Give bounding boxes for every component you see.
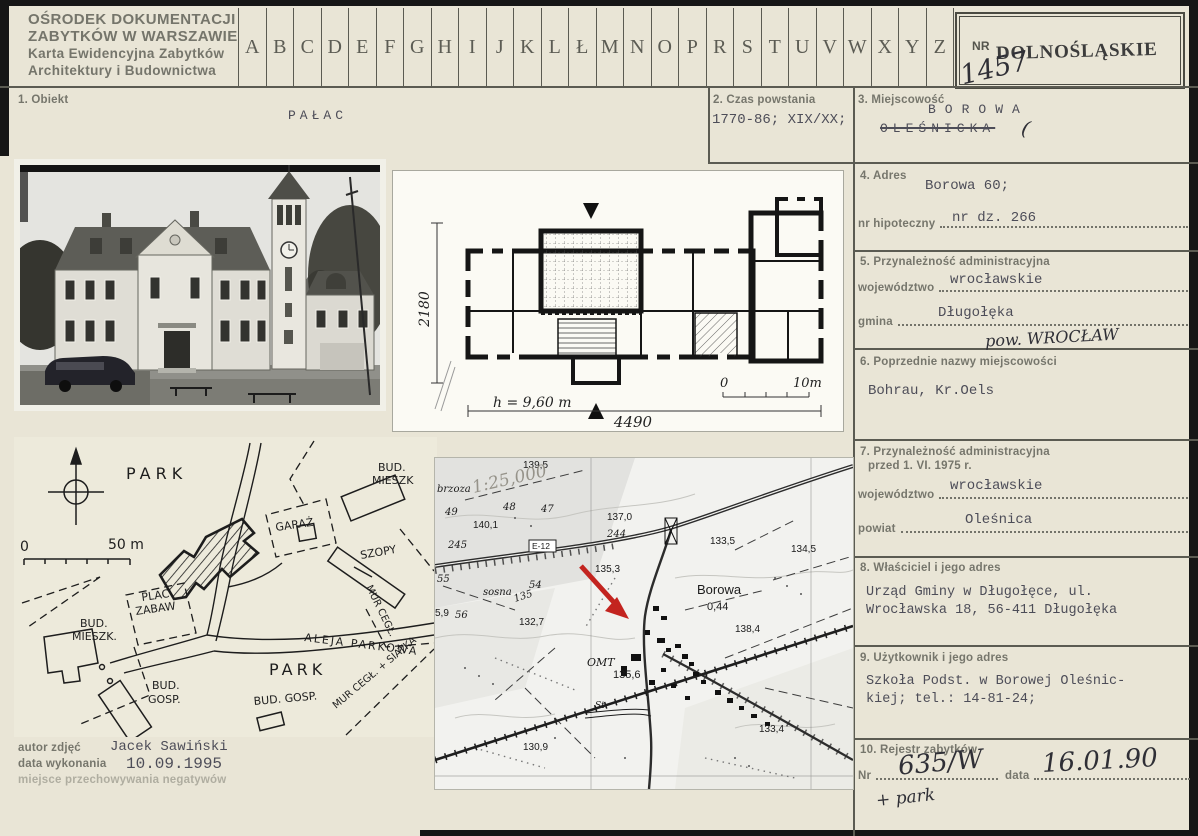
uzytkownik-line1: Szkoła Podst. w Borowej Oleśnic-	[866, 674, 1125, 689]
org-header: OŚRODEK DOKUMENTACJI ZABYTKÓW W WARSZAWI…	[28, 11, 238, 79]
alpha-letter: Y	[898, 8, 926, 86]
nr-hipoteczny-row: nr hipoteczny	[858, 216, 1188, 230]
map-label: 49	[444, 507, 458, 518]
rule	[853, 250, 1198, 252]
site-label: 0	[20, 539, 29, 555]
map-label: 138,4	[735, 624, 760, 635]
map-label: 137,0	[607, 512, 632, 523]
negatywy-label: miejsce przechowywania negatywów	[18, 774, 226, 786]
field-czas-label: 2. Czas powstania	[713, 94, 815, 106]
compass	[48, 449, 104, 525]
site-label: PARK	[269, 660, 326, 679]
rejestr-data-label: data	[1005, 770, 1029, 782]
siteplan-scale	[24, 559, 130, 565]
field-obiekt-value: PAŁAC	[288, 108, 347, 123]
org-line: Architektury i Budownictwa	[28, 62, 238, 79]
dotted-line	[940, 224, 1188, 228]
palace-facade	[55, 211, 270, 373]
scan-edge-right	[1189, 0, 1198, 836]
alpha-letter: M	[596, 8, 624, 86]
rule	[853, 556, 1198, 558]
org-line: Karta Ewidencyjna Zabytków	[28, 45, 238, 62]
wlasciciel-line1: Urząd Gminy w Długołęce, ul.	[866, 585, 1093, 600]
site-label: PARK	[126, 464, 187, 483]
map-label: 135,3	[595, 564, 620, 575]
site-label: GOSP.	[148, 693, 181, 706]
scan-edge-top	[0, 0, 1198, 6]
map-label: 134,5	[791, 544, 816, 555]
alpha-letter: K	[513, 8, 541, 86]
wojewodztwo-row: województwo	[858, 280, 1188, 294]
alpha-letter: Ł	[568, 8, 596, 86]
powiat-row: powiat	[858, 521, 1188, 535]
topo-map-image: brzoza 139,5 49 48 47 140,1 245 E-12 137…	[435, 458, 853, 789]
field-przyn1975-label2: przed 1. VI. 1975 r.	[868, 460, 972, 472]
rule	[853, 645, 1198, 647]
alpha-letter: C	[293, 8, 321, 86]
alpha-letter: U	[788, 8, 816, 86]
map-label: 132,7	[519, 617, 544, 628]
alpha-letter: H	[431, 8, 459, 86]
alpha-letter: J	[486, 8, 514, 86]
alpha-letter: R	[706, 8, 734, 86]
rejestr-data-value: 16.01.90	[1041, 743, 1158, 779]
alpha-letter: P	[678, 8, 706, 86]
site-label: MIESZK.	[72, 630, 117, 643]
plan-height-note: h = 9,60 m	[493, 395, 572, 411]
field-adres-value: Borowa 60;	[925, 178, 1009, 194]
scan-edge-bottom	[420, 830, 1189, 836]
map-label: 56	[455, 610, 468, 621]
autor-label: autor zdjęć	[18, 742, 81, 754]
wojewodztwo-label: województwo	[858, 282, 934, 294]
alpha-letter: I	[458, 8, 486, 86]
site-label: BUD.	[152, 679, 180, 692]
field-przyn1975-label: 7. Przynależność administracyjna	[860, 446, 1050, 458]
powiat-label: powiat	[858, 523, 896, 535]
wlasciciel-line2: Wrocławska 18, 56-411 Długołęka	[866, 603, 1117, 618]
topo-map: brzoza 139,5 49 48 47 140,1 245 E-12 137…	[434, 457, 854, 790]
gmina-label: gmina	[858, 316, 893, 328]
plan-scale-0: 0	[720, 376, 728, 391]
rejestr-nr-label: Nr	[858, 770, 871, 782]
field-obiekt-label: 1. Obiekt	[18, 94, 68, 106]
rule	[708, 88, 710, 163]
nr-handwritten-value: 1457	[957, 46, 1031, 92]
field-poprzednie-label: 6. Poprzednie nazwy miejscowości	[860, 356, 1057, 368]
site-label: MIESZK	[372, 474, 414, 487]
map-label: sosna	[483, 587, 512, 598]
map-label: 140,1	[473, 520, 498, 531]
map-label: 135,6	[613, 669, 641, 681]
rejestr-nr-extra: + park	[875, 785, 936, 811]
map-label: 48	[502, 502, 516, 513]
plan-scale-10m: 10m	[793, 376, 822, 391]
powiat-handwritten: pow. WROCŁAW	[985, 325, 1120, 351]
field-miejscowosc-value: BOROWA	[928, 102, 1029, 117]
alpha-letter: X	[871, 8, 899, 86]
alpha-letter: N	[623, 8, 651, 86]
wojewodztwo-1975-row: województwo	[858, 487, 1188, 501]
map-label: E-12	[532, 541, 550, 551]
map-label: 130,9	[523, 742, 548, 753]
site-label: 50 m	[108, 537, 144, 553]
field-miejscowosc-struck: OLEŚNICKA	[880, 121, 995, 136]
field-przynaleznosc-label: 5. Przynależność administracyjna	[860, 256, 1050, 268]
clock-tower	[268, 165, 310, 369]
scan-edge-left	[0, 6, 9, 156]
map-label: brzoza	[437, 484, 471, 495]
correction-mark: (	[1019, 115, 1032, 140]
alpha-letter: W	[843, 8, 871, 86]
map-label: 245	[447, 540, 467, 551]
site-label: BUD.	[378, 461, 406, 474]
palace-footprint	[160, 519, 258, 599]
plan-dim-height: 2180	[417, 291, 433, 328]
wojewodztwo-1975-label: województwo	[858, 489, 934, 501]
window-gaps	[464, 195, 825, 361]
rule	[853, 439, 1198, 441]
data-wykonania-label: data wykonania	[18, 758, 106, 770]
field-poprzednie-value: Bohrau, Kr.Oels	[868, 383, 994, 399]
dotted-line	[901, 529, 1188, 533]
org-line: ZABYTKÓW W WARSZAWIE	[28, 28, 238, 45]
map-label: Borowa	[697, 582, 742, 597]
alpha-letter: F	[376, 8, 404, 86]
map-label: 133,5	[710, 536, 735, 547]
site-plan-drawing: PARK BUD. MIESZK GARAŻ SZOPY MUR CEGŁ. P…	[14, 437, 437, 737]
entrance-arrow-top	[583, 203, 599, 219]
floor-plan-drawing: 2180 h = 9,60 m 4490 0 10m	[393, 171, 843, 431]
uzytkownik-line2: kiej; tel.: 14-81-24;	[866, 692, 1036, 707]
site-plan: PARK BUD. MIESZK GARAŻ SZOPY MUR CEGŁ. P…	[14, 437, 437, 737]
alpha-letter: B	[266, 8, 294, 86]
card-number-box-inner: NR DOLNOŚLĄSKIE 1457	[959, 16, 1181, 85]
gmina-row: gmina	[858, 314, 1188, 328]
rule	[708, 162, 1198, 164]
data-wykonania-value: 10.09.1995	[126, 755, 222, 773]
rule	[853, 738, 1198, 740]
alpha-letter: D	[321, 8, 349, 86]
alpha-letter: T	[761, 8, 789, 86]
map-label: 133,4	[759, 724, 784, 735]
site-label: GARAŻ	[275, 516, 315, 534]
field-czas-value: 1770-86; XIX/XX;	[712, 112, 846, 128]
dotted-line	[939, 495, 1188, 499]
field-wlasciciel-label: 8. Właściciel i jego adres	[860, 562, 1001, 574]
map-label: 5,9	[435, 608, 449, 619]
map-label: 0,44	[707, 601, 728, 613]
map-label: 55	[437, 574, 450, 585]
field-adres-label: 4. Adres	[860, 170, 907, 182]
alpha-letter: S	[733, 8, 761, 86]
alpha-letter: E	[348, 8, 376, 86]
alpha-letter: V	[816, 8, 844, 86]
floor-plan: 2180 h = 9,60 m 4490 0 10m	[392, 170, 844, 432]
site-label: ZABAW	[135, 599, 177, 618]
dotted-line	[898, 322, 1188, 326]
org-line: OŚRODEK DOKUMENTACJI	[28, 11, 238, 28]
autor-value: Jacek Sawiński	[110, 739, 228, 755]
alpha-letter: A	[238, 8, 266, 86]
palace-photo	[14, 159, 386, 411]
map-label: OMT	[587, 656, 616, 669]
site-label: BUD.	[80, 617, 108, 630]
alpha-letter: G	[403, 8, 431, 86]
map-label: 47	[540, 504, 554, 515]
alpha-letter: O	[651, 8, 679, 86]
alpha-letter: Z	[926, 8, 955, 86]
map-label: 244	[606, 529, 626, 540]
nr-label: NR	[972, 39, 990, 53]
site-label: SZOPY	[359, 543, 397, 562]
palace-photo-image	[20, 165, 380, 405]
heritage-record-card: OŚRODEK DOKUMENTACJI ZABYTKÓW W WARSZAWI…	[0, 0, 1198, 836]
field-uzytkownik-label: 9. Użytkownik i jego adres	[860, 652, 1008, 664]
dotted-line	[939, 288, 1188, 292]
alphabet-index-strip: A B C D E F G H I J K L Ł M N O P R S T …	[238, 8, 954, 86]
nr-hipoteczny-label: nr hipoteczny	[858, 218, 935, 230]
card-number-box: NR DOLNOŚLĄSKIE 1457	[955, 12, 1185, 89]
alpha-letter: L	[541, 8, 569, 86]
site-label: BUD. GOSP.	[253, 689, 318, 707]
map-label: St.	[595, 701, 608, 711]
rule	[0, 86, 1198, 88]
plan-dim-width: 4490	[613, 413, 653, 431]
